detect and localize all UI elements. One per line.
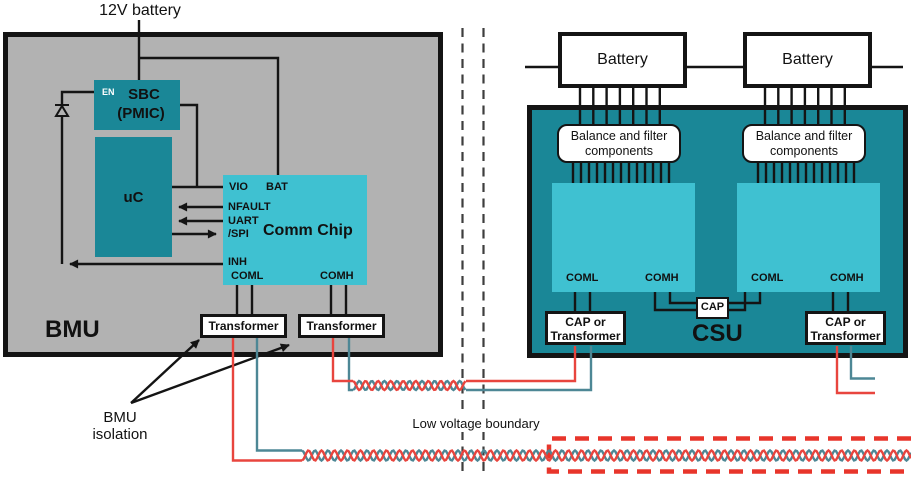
bmu-isolation-label: BMU isolation <box>80 409 160 443</box>
pin-inh: INH <box>228 256 247 268</box>
chip1-coml-label: COML <box>566 272 598 284</box>
sbc-subtitle: (PMIC) <box>94 105 180 122</box>
uc-comm-signals <box>172 207 223 234</box>
pin-coml: COML <box>231 270 263 282</box>
sbc-block: EN SBC (PMIC) <box>94 80 180 130</box>
isolation-arrows <box>131 340 289 403</box>
transformer2-box: Transformer <box>298 314 385 338</box>
balance-filter1-box: Balance and filter components <box>557 124 681 163</box>
chip2-coml-label: COML <box>751 272 783 284</box>
bmu-label: BMU <box>45 316 100 344</box>
battery-12v-label: 12V battery <box>99 2 181 20</box>
balance-filter2-box: Balance and filter components <box>742 124 866 163</box>
chip2-comh-label: COMH <box>830 272 864 284</box>
csu-chip-1: COML COMH <box>552 183 695 292</box>
cap-or-transformer2-box: CAP or Transformer <box>805 311 886 345</box>
pin-spi: /SPI <box>228 228 249 240</box>
low-voltage-boundary-label: Low voltage boundary <box>409 415 542 432</box>
twisted-pairs <box>302 381 911 461</box>
transformer1-box: Transformer <box>200 314 287 338</box>
battery1-box: Battery <box>558 32 687 88</box>
pin-uart: UART <box>228 215 259 227</box>
comm-chip-block: VIO BAT NFAULT UART /SPI Comm Chip INH C… <box>223 175 367 285</box>
battery2-box: Battery <box>743 32 872 88</box>
sbc-title: SBC <box>94 86 180 103</box>
pin-bat: BAT <box>266 181 288 193</box>
csu-chip-2: COML COMH <box>737 183 880 292</box>
pin-comh: COMH <box>320 270 354 282</box>
link-wires <box>233 338 875 461</box>
diode-icon <box>55 105 69 116</box>
cap-or-transformer1-box: CAP or Transformer <box>545 311 626 345</box>
bms-architecture-diagram: 12V battery EN SBC (PMIC) uC VIO BAT NFA… <box>0 0 911 480</box>
pin-nfault: NFAULT <box>228 201 271 213</box>
cap-box: CAP <box>696 297 729 319</box>
comm-pins <box>237 285 346 316</box>
csu-label: CSU <box>692 320 743 348</box>
uc-block: uC <box>95 137 172 257</box>
pin-vio: VIO <box>229 181 248 193</box>
chip1-comh-label: COMH <box>645 272 679 284</box>
comm-chip-title: Comm Chip <box>263 222 353 240</box>
